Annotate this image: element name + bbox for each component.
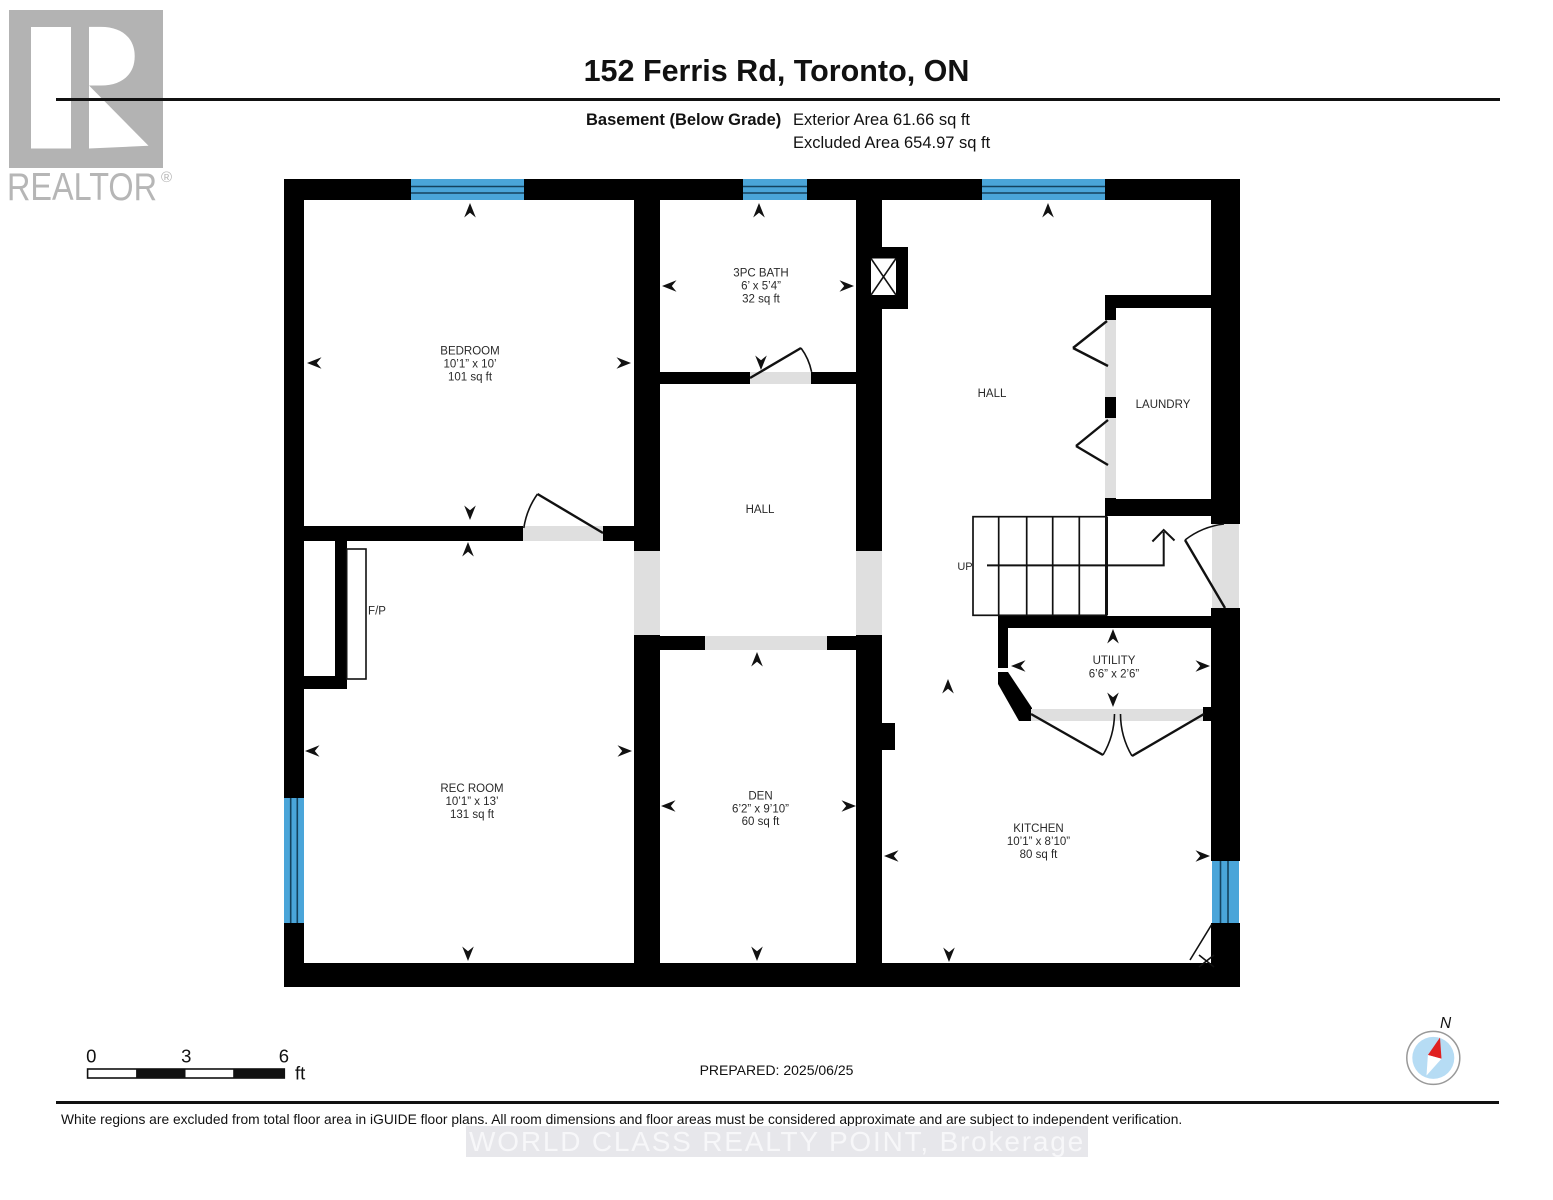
svg-text:LAUNDRY: LAUNDRY xyxy=(1136,399,1191,411)
svg-text:60 sq ft: 60 sq ft xyxy=(742,816,781,828)
svg-text:10’1” x 10’: 10’1” x 10’ xyxy=(443,359,496,371)
svg-text:131 sq ft: 131 sq ft xyxy=(450,809,495,821)
svg-text:32 sq ft: 32 sq ft xyxy=(742,294,781,306)
svg-text:6: 6 xyxy=(279,1046,289,1067)
svg-text:KITCHEN: KITCHEN xyxy=(1013,823,1063,835)
svg-text:0: 0 xyxy=(86,1046,96,1067)
svg-text:HALL: HALL xyxy=(746,504,775,516)
svg-text:6’2” x 9’10”: 6’2” x 9’10” xyxy=(732,804,789,816)
svg-text:N: N xyxy=(1440,1015,1452,1032)
svg-text:UP: UP xyxy=(957,561,972,573)
svg-text:80 sq ft: 80 sq ft xyxy=(1020,849,1059,861)
svg-text:6’ x 5’4”: 6’ x 5’4” xyxy=(741,281,781,293)
svg-text:10’1” x 8’10”: 10’1” x 8’10” xyxy=(1007,836,1070,848)
svg-text:BEDROOM: BEDROOM xyxy=(440,346,499,358)
svg-text:REC ROOM: REC ROOM xyxy=(440,783,503,795)
svg-text:10’1” x 13’: 10’1” x 13’ xyxy=(445,796,498,808)
svg-text:3: 3 xyxy=(181,1046,191,1067)
svg-text:®: ® xyxy=(161,169,172,186)
svg-text:DEN: DEN xyxy=(748,791,772,803)
svg-text:3PC BATH: 3PC BATH xyxy=(733,268,788,280)
svg-text:F/P: F/P xyxy=(368,606,386,618)
svg-text:HALL: HALL xyxy=(978,388,1007,400)
svg-text:6’6” x 2’6”: 6’6” x 2’6” xyxy=(1089,669,1140,681)
svg-text:UTILITY: UTILITY xyxy=(1093,655,1136,667)
svg-text:ft: ft xyxy=(295,1062,305,1083)
svg-text:101 sq ft: 101 sq ft xyxy=(448,372,493,384)
svg-text:REALTOR: REALTOR xyxy=(7,166,157,209)
